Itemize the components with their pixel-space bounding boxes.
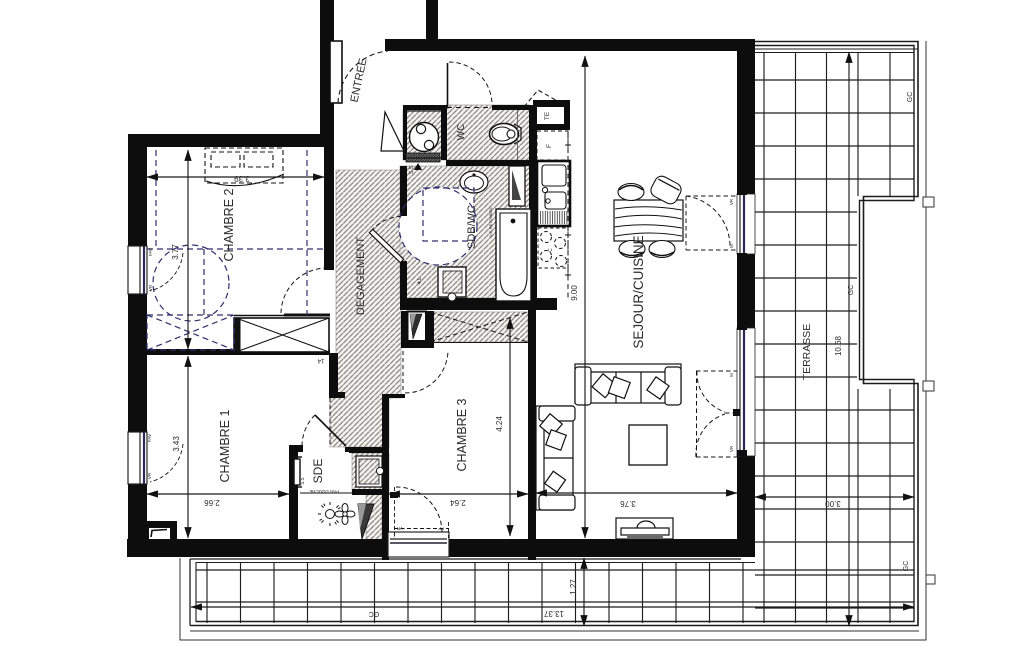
- svg-text:2.64: 2.64: [450, 498, 466, 507]
- svg-text:GC: GC: [903, 561, 910, 572]
- svg-text:9.00: 9.00: [570, 285, 579, 301]
- svg-text:VR: VR: [729, 198, 734, 205]
- svg-text:3.76: 3.76: [620, 499, 636, 508]
- svg-text:CHAMBRE 1: CHAMBRE 1: [218, 409, 232, 482]
- svg-text:FAV: FAV: [147, 434, 152, 442]
- svg-text:CHAMBRE 2: CHAMBRE 2: [222, 188, 236, 261]
- svg-text:3.39: 3.39: [234, 174, 250, 183]
- svg-text:S.S: S.S: [409, 165, 415, 174]
- svg-text:3.77: 3.77: [171, 244, 180, 260]
- svg-text:1.27: 1.27: [569, 579, 578, 595]
- svg-text:M: M: [729, 244, 734, 248]
- svg-text:WC: WC: [456, 124, 467, 141]
- svg-text:FAV: FAV: [148, 248, 153, 256]
- svg-text:VR: VR: [147, 472, 152, 479]
- svg-text:=: =: [417, 281, 423, 285]
- svg-text:VR: VR: [396, 526, 403, 531]
- svg-text:TERRASSE: TERRASSE: [801, 324, 813, 381]
- svg-text:14: 14: [317, 357, 324, 363]
- svg-text:VR: VR: [148, 284, 153, 291]
- svg-text:GC: GC: [907, 92, 914, 103]
- svg-text:PAR DOUCHE: PAR DOUCHE: [309, 489, 339, 494]
- svg-text:N.E RETOMBEE: N.E RETOMBEE: [488, 207, 493, 237]
- svg-text:M: M: [729, 373, 734, 377]
- svg-text:F: F: [546, 144, 553, 148]
- svg-text:C: C: [548, 248, 554, 252]
- svg-text:10.68: 10.68: [834, 335, 843, 356]
- svg-text:3.00: 3.00: [825, 499, 841, 508]
- svg-text:SDE: SDE: [311, 459, 325, 484]
- svg-text:4.24: 4.24: [495, 416, 504, 432]
- svg-text:SDB/WC: SDB/WC: [466, 205, 478, 249]
- svg-text:DEGAGEMENT: DEGAGEMENT: [355, 237, 367, 316]
- svg-text:VR: VR: [729, 445, 734, 452]
- svg-text:FF: FF: [438, 526, 444, 531]
- svg-text:2.66: 2.66: [204, 498, 220, 507]
- svg-text:SEJOUR/CUISINE: SEJOUR/CUISINE: [631, 235, 646, 348]
- svg-text:GC: GC: [848, 285, 855, 296]
- svg-text:5.5: 5.5: [300, 477, 306, 484]
- svg-text:CHAMBRE 3: CHAMBRE 3: [455, 398, 469, 471]
- svg-text:13.37: 13.37: [543, 609, 564, 618]
- svg-text:TE: TE: [544, 111, 551, 120]
- svg-text:3.43: 3.43: [172, 436, 181, 452]
- svg-text:GC: GC: [369, 610, 380, 617]
